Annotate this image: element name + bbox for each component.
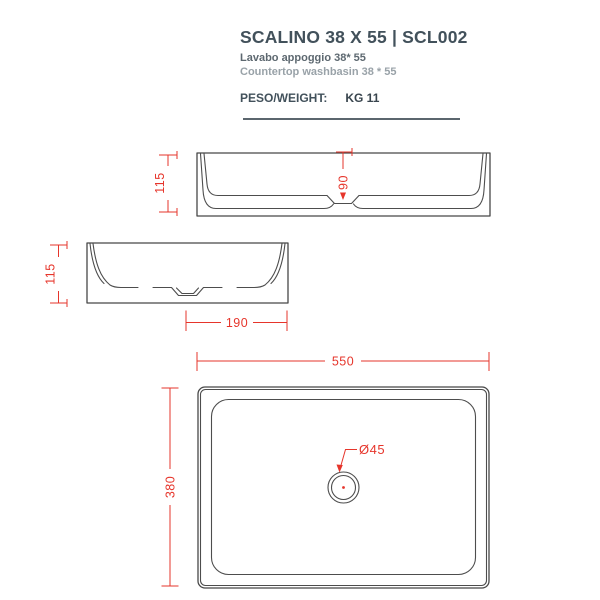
dimension-basin-depth: 90 bbox=[336, 148, 352, 200]
dimension-top-depth: 380 bbox=[162, 388, 179, 586]
spec-sheet-page: SCALINO 38 X 55 | SCL002 Lavabo appoggio… bbox=[0, 0, 600, 600]
dim-label-115-long: 115 bbox=[153, 172, 167, 193]
dimension-top-width: 550 bbox=[197, 352, 489, 371]
dimension-drain-diameter: Ø45 bbox=[337, 442, 386, 489]
dim-label-380: 380 bbox=[164, 476, 178, 498]
drain-center-mark bbox=[342, 486, 345, 489]
dim-label-550: 550 bbox=[332, 355, 354, 369]
dim-label-drain-diameter: Ø45 bbox=[359, 442, 385, 457]
dimension-drain-offset: 190 bbox=[186, 311, 287, 332]
dim-label-90: 90 bbox=[337, 175, 351, 190]
technical-drawing: 115 90 115 bbox=[0, 0, 600, 600]
dimension-side-short-height: 115 bbox=[44, 241, 68, 307]
dim-label-115-short: 115 bbox=[44, 263, 58, 284]
dimension-side-long-height: 115 bbox=[153, 151, 177, 216]
dim-label-190: 190 bbox=[226, 316, 248, 330]
side-view-short bbox=[87, 243, 288, 303]
